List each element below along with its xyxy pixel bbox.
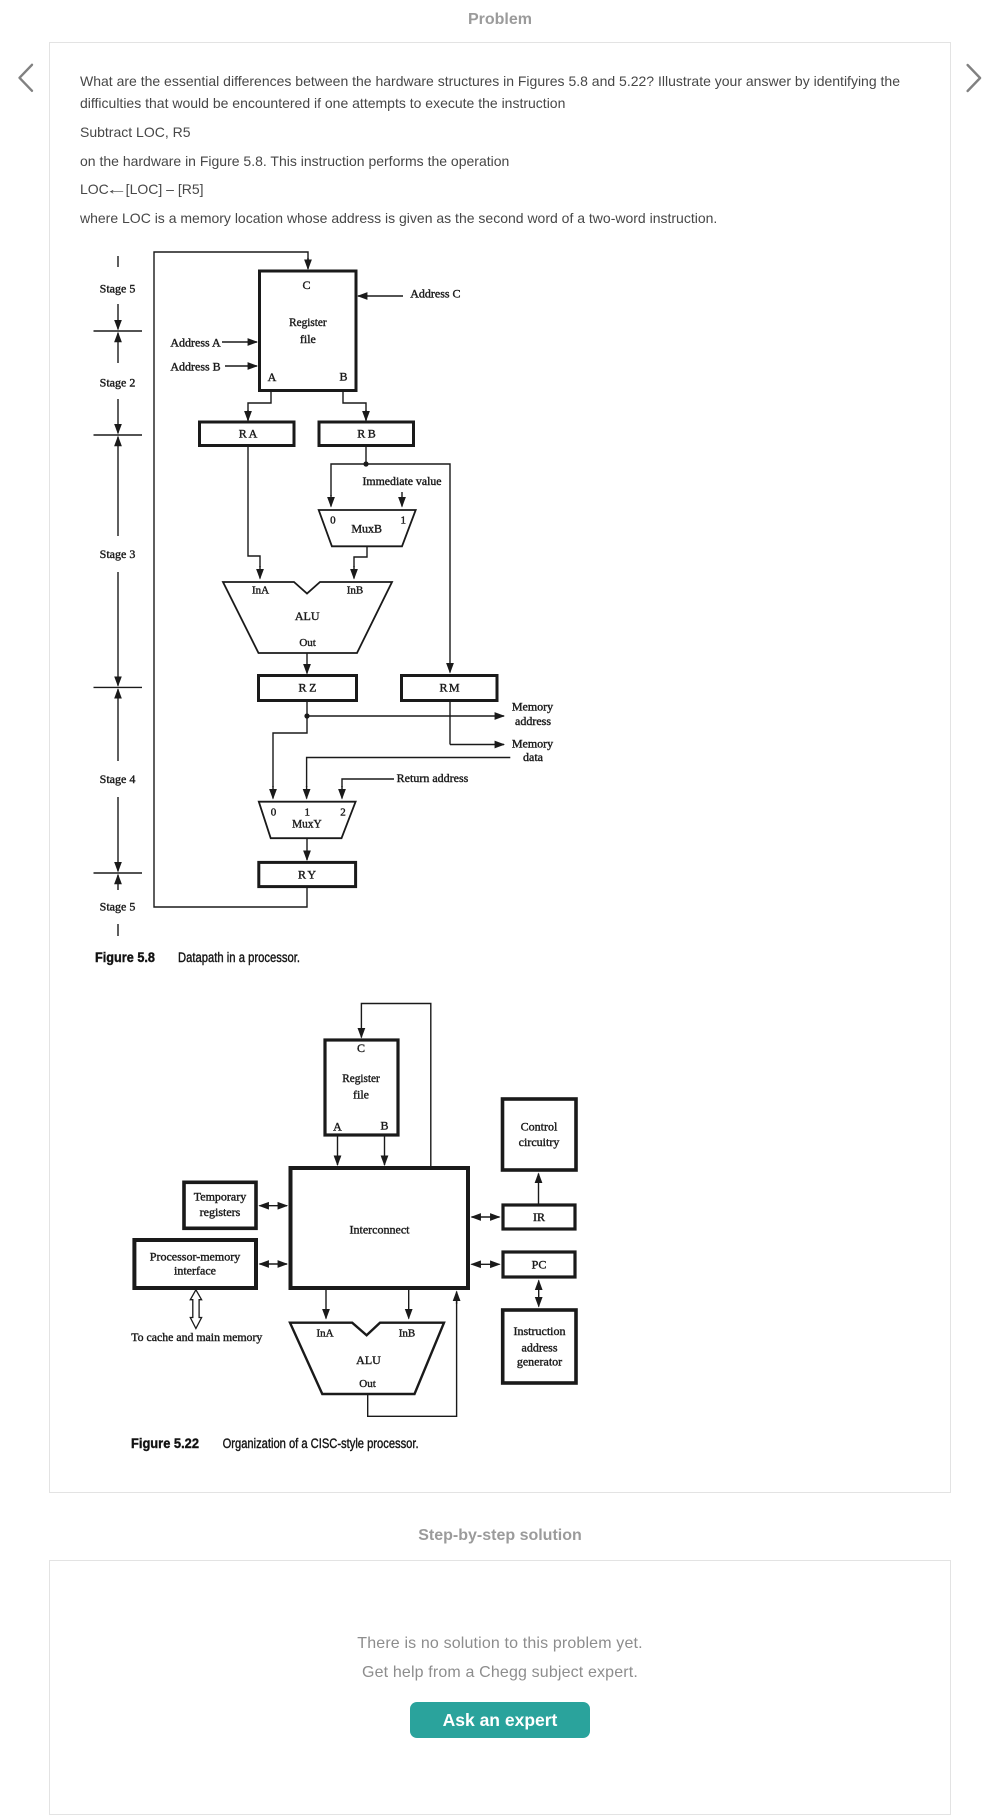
svg-text:RM: RM [440, 681, 460, 695]
svg-text:C: C [357, 1041, 365, 1055]
svg-text:Interconnect: Interconnect [350, 1223, 411, 1237]
svg-text:Stage 5: Stage 5 [100, 282, 136, 296]
svg-text:Stage 3: Stage 3 [100, 547, 136, 561]
svg-text:Processor-memory: Processor-memory [150, 1250, 240, 1264]
svg-text:Return address: Return address [397, 771, 469, 785]
svg-text:C: C [302, 278, 310, 292]
svg-text:Stage 4: Stage 4 [100, 772, 136, 786]
svg-text:RA: RA [239, 427, 258, 441]
svg-text:RY: RY [298, 868, 316, 882]
svg-text:Address B: Address B [170, 360, 220, 374]
svg-text:Stage 5: Stage 5 [100, 900, 136, 914]
svg-text:MuxB: MuxB [351, 522, 382, 536]
svg-text:Immediate value: Immediate value [363, 474, 442, 488]
svg-text:Temporary: Temporary [194, 1190, 246, 1204]
svg-text:circuitry: circuitry [519, 1135, 560, 1149]
svg-text:1: 1 [400, 515, 406, 527]
svg-text:generator: generator [517, 1355, 562, 1369]
svg-text:A: A [333, 1120, 342, 1134]
svg-text:Instruction: Instruction [514, 1324, 566, 1338]
svg-text:IR: IR [533, 1210, 545, 1224]
svg-text:address: address [515, 714, 551, 728]
svg-text:Register: Register [342, 1071, 380, 1085]
svg-text:RB: RB [357, 427, 376, 441]
svg-text:interface: interface [174, 1264, 216, 1278]
svg-text:B: B [339, 370, 347, 384]
svg-text:0: 0 [271, 807, 277, 819]
svg-text:PC: PC [532, 1258, 547, 1272]
svg-text:InB: InB [399, 1328, 416, 1340]
svg-text:MuxY: MuxY [292, 817, 322, 831]
svg-text:Figure 5.22: Figure 5.22 [131, 1436, 199, 1451]
svg-text:ALU: ALU [295, 609, 320, 623]
svg-text:Address C: Address C [410, 287, 460, 301]
svg-text:ALU: ALU [356, 1353, 381, 1367]
svg-text:To cache and main memory: To cache and main memory [131, 1330, 262, 1344]
svg-text:Figure 5.8: Figure 5.8 [95, 950, 155, 965]
svg-text:Address A: Address A [170, 336, 221, 350]
svg-text:Out: Out [359, 1378, 376, 1390]
svg-text:2: 2 [340, 807, 346, 819]
svg-text:file: file [353, 1088, 369, 1102]
svg-text:Stage 2: Stage 2 [100, 376, 136, 390]
svg-text:Register: Register [289, 315, 327, 329]
svg-text:registers: registers [200, 1205, 241, 1219]
svg-text:Datapath in a processor.: Datapath in a processor. [178, 950, 300, 965]
svg-text:A: A [268, 370, 277, 384]
svg-text:Memory: Memory [512, 700, 553, 714]
svg-text:Memory: Memory [512, 737, 553, 751]
svg-text:Organization of a CISC-style p: Organization of a CISC-style processor. [223, 1436, 419, 1451]
svg-text:InA: InA [252, 585, 269, 597]
svg-text:RZ: RZ [299, 681, 317, 695]
svg-text:InA: InA [316, 1328, 333, 1340]
svg-text:address: address [522, 1341, 558, 1355]
svg-text:0: 0 [330, 515, 336, 527]
svg-text:data: data [523, 750, 544, 764]
svg-text:Out: Out [299, 637, 316, 649]
svg-text:B: B [380, 1119, 388, 1133]
svg-text:Control: Control [521, 1120, 558, 1134]
svg-text:InB: InB [347, 585, 364, 597]
svg-text:file: file [300, 332, 316, 346]
